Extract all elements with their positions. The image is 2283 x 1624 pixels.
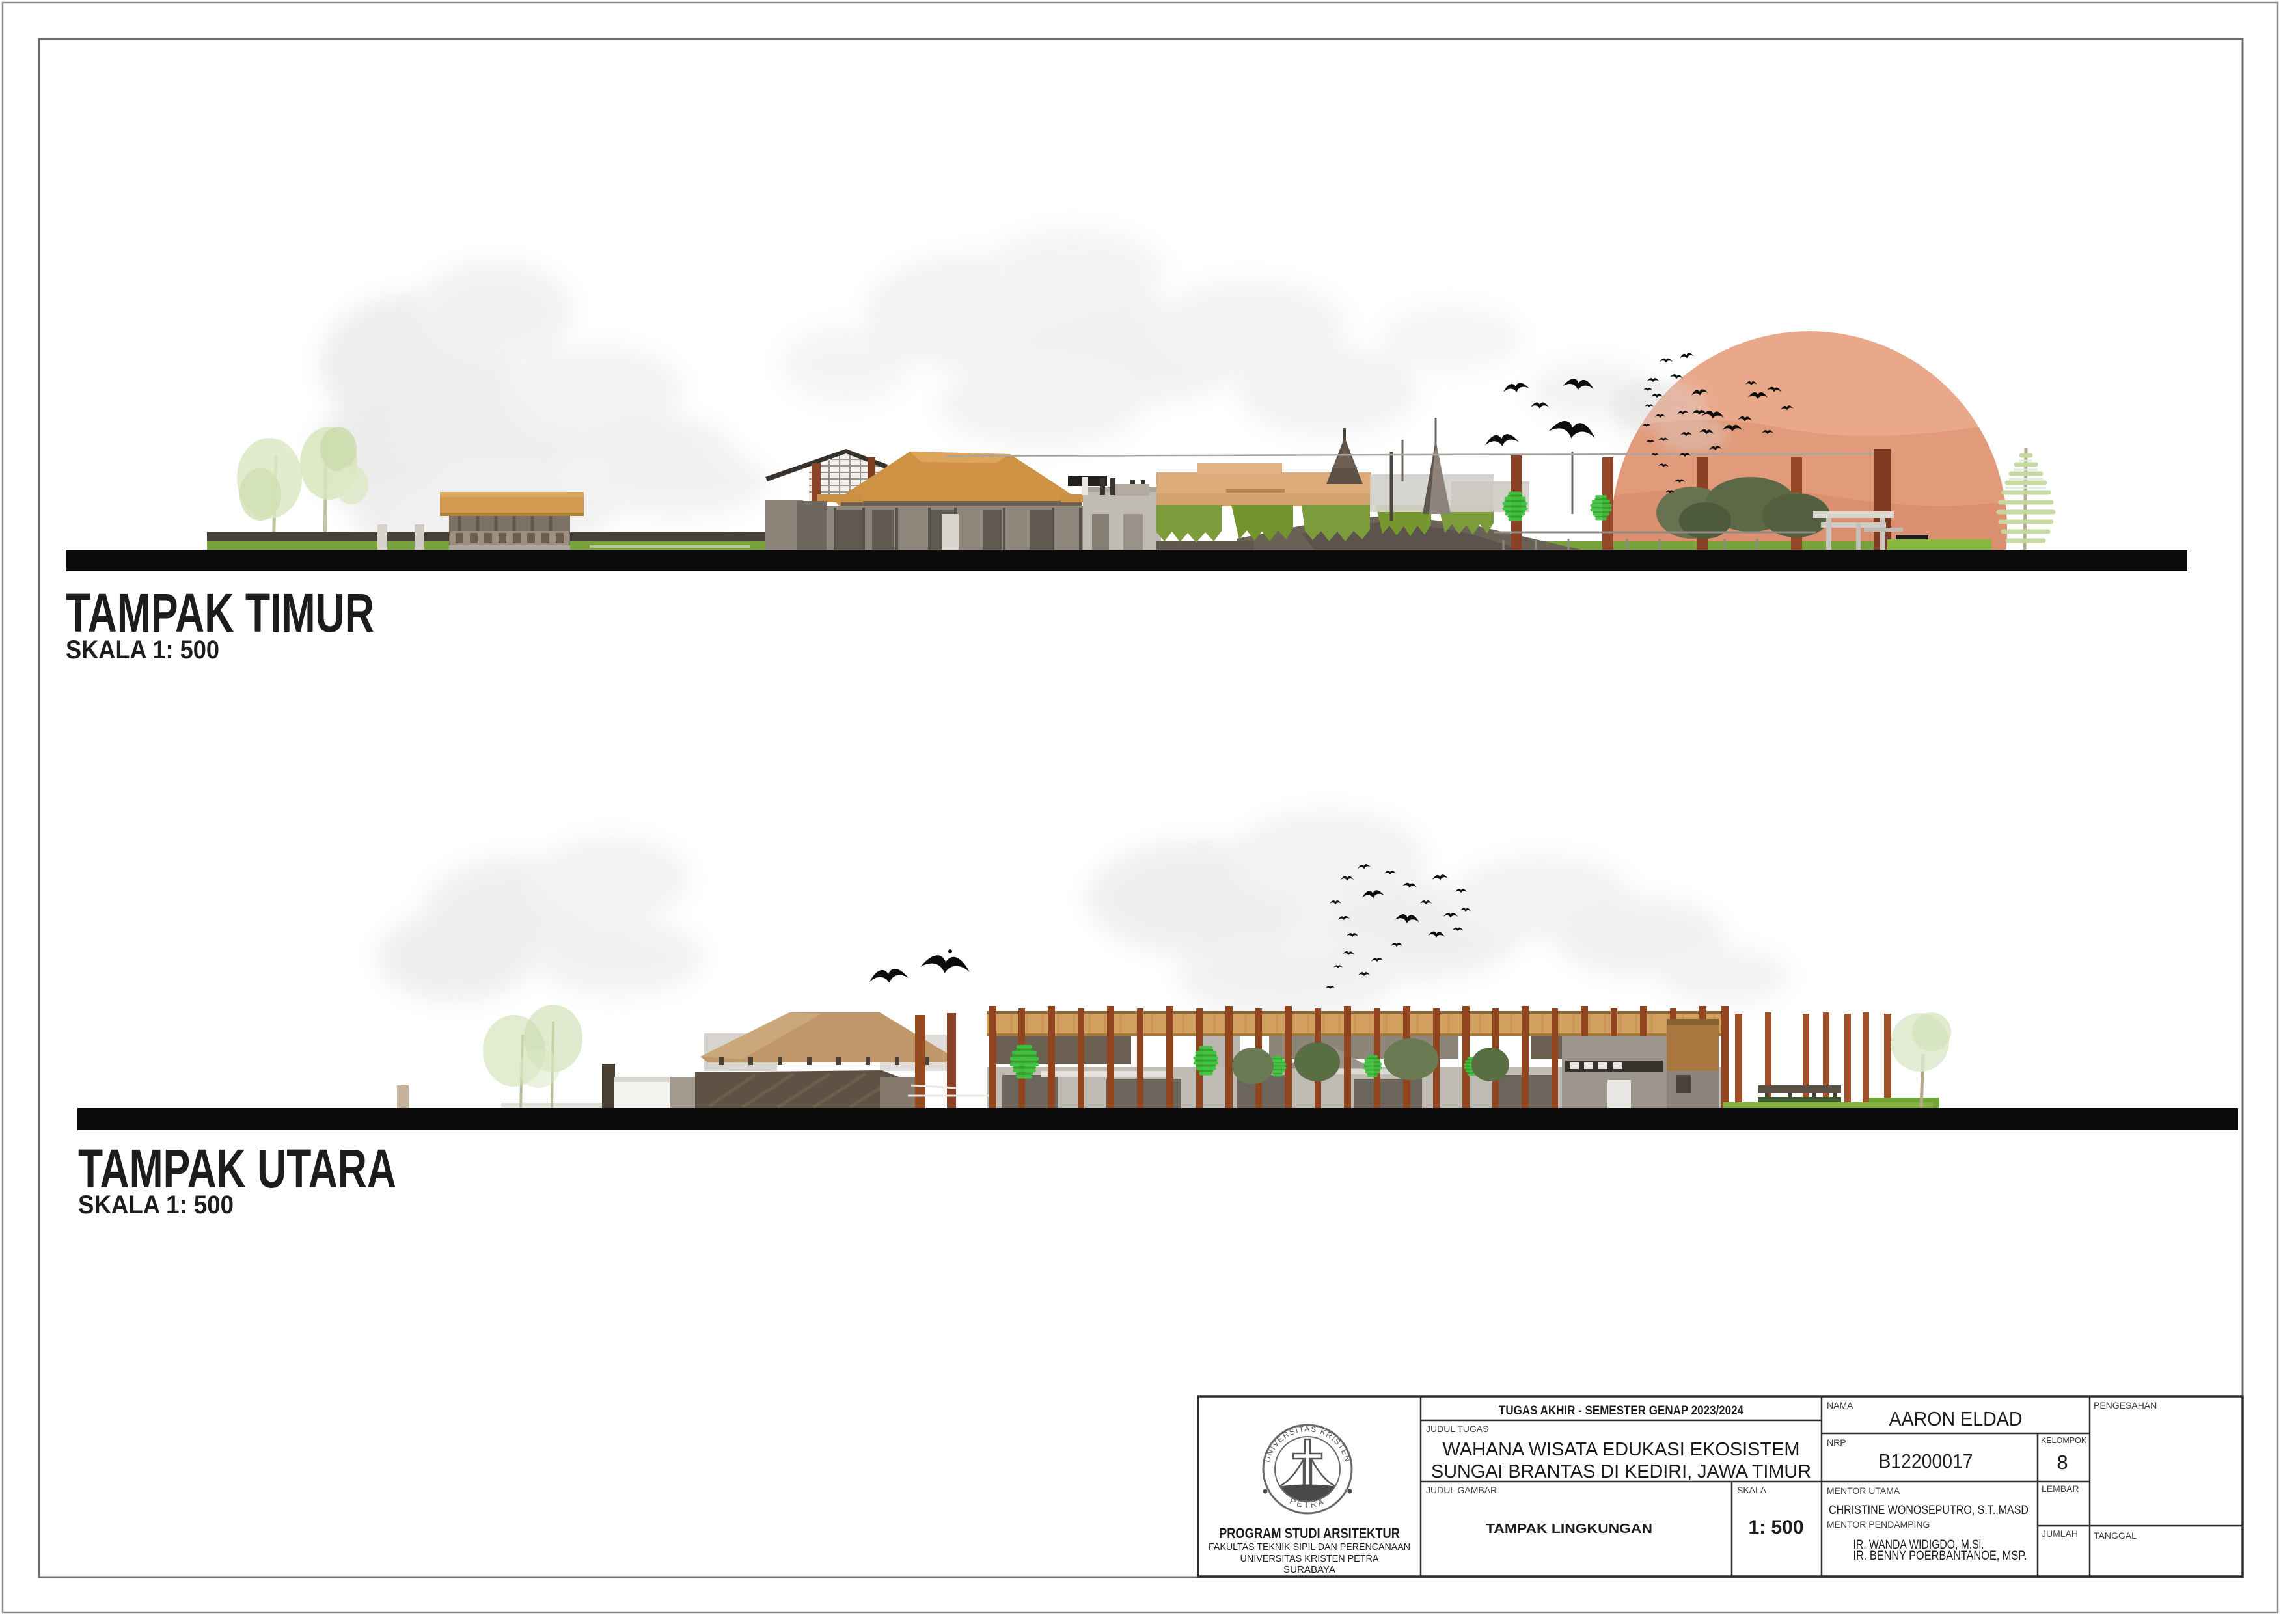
svg-text:AARON ELDAD: AARON ELDAD [1889, 1407, 2023, 1430]
svg-text:JUDUL GAMBAR: JUDUL GAMBAR [1426, 1485, 1497, 1495]
svg-text:TUGAS AKHIR - SEMESTER GENAP 2: TUGAS AKHIR - SEMESTER GENAP 2023/2024 [1499, 1404, 1743, 1418]
svg-text:SKALA 1: 500: SKALA 1: 500 [78, 1191, 234, 1219]
svg-text:SKALA 1: 500: SKALA 1: 500 [66, 636, 219, 664]
svg-text:MENTOR PENDAMPING: MENTOR PENDAMPING [1827, 1519, 1930, 1530]
svg-text:MENTOR UTAMA: MENTOR UTAMA [1827, 1485, 1900, 1496]
svg-text:PROGRAM STUDI ARSITEKTUR: PROGRAM STUDI ARSITEKTUR [1219, 1525, 1400, 1541]
svg-text:NAMA: NAMA [1827, 1400, 1853, 1411]
svg-text:UNIVERSITAS KRISTEN PETRA: UNIVERSITAS KRISTEN PETRA [1240, 1553, 1379, 1564]
svg-text:SURABAYA: SURABAYA [1283, 1564, 1335, 1575]
svg-text:SKALA: SKALA [1737, 1485, 1767, 1495]
svg-text:TAMPAK TIMUR: TAMPAK TIMUR [66, 582, 374, 643]
svg-text:KELOMPOK: KELOMPOK [2041, 1436, 2087, 1445]
svg-text:TANGGAL: TANGGAL [2094, 1530, 2137, 1541]
svg-text:LEMBAR: LEMBAR [2042, 1483, 2079, 1494]
svg-text:PENGESAHAN: PENGESAHAN [2094, 1400, 2157, 1411]
svg-text:TAMPAK UTARA: TAMPAK UTARA [78, 1138, 396, 1199]
svg-text:FAKULTAS TEKNIK SIPIL DAN PERE: FAKULTAS TEKNIK SIPIL DAN PERENCANAAN [1209, 1541, 1410, 1552]
svg-text:SUNGAI BRANTAS DI KEDIRI, JAWA: SUNGAI BRANTAS DI KEDIRI, JAWA TIMUR [1431, 1461, 1811, 1482]
svg-text:NRP: NRP [1827, 1437, 1846, 1448]
svg-text:JUMLAH: JUMLAH [2042, 1528, 2078, 1539]
svg-text:IR. BENNY POERBANTANOE, MSP.: IR. BENNY POERBANTANOE, MSP. [1853, 1549, 2027, 1563]
svg-text:JUDUL TUGAS: JUDUL TUGAS [1426, 1424, 1488, 1434]
svg-text:CHRISTINE WONOSEPUTRO, S.T.,MA: CHRISTINE WONOSEPUTRO, S.T.,MASD [1829, 1504, 2029, 1517]
svg-text:WAHANA WISATA EDUKASI EKOSISTE: WAHANA WISATA EDUKASI EKOSISTEM [1443, 1439, 1800, 1460]
svg-text:B12200017: B12200017 [1879, 1450, 1973, 1472]
svg-text:1: 500: 1: 500 [1748, 1517, 1803, 1538]
svg-text:8: 8 [2057, 1451, 2068, 1474]
svg-text:TAMPAK LINGKUNGAN: TAMPAK LINGKUNGAN [1486, 1522, 1652, 1536]
